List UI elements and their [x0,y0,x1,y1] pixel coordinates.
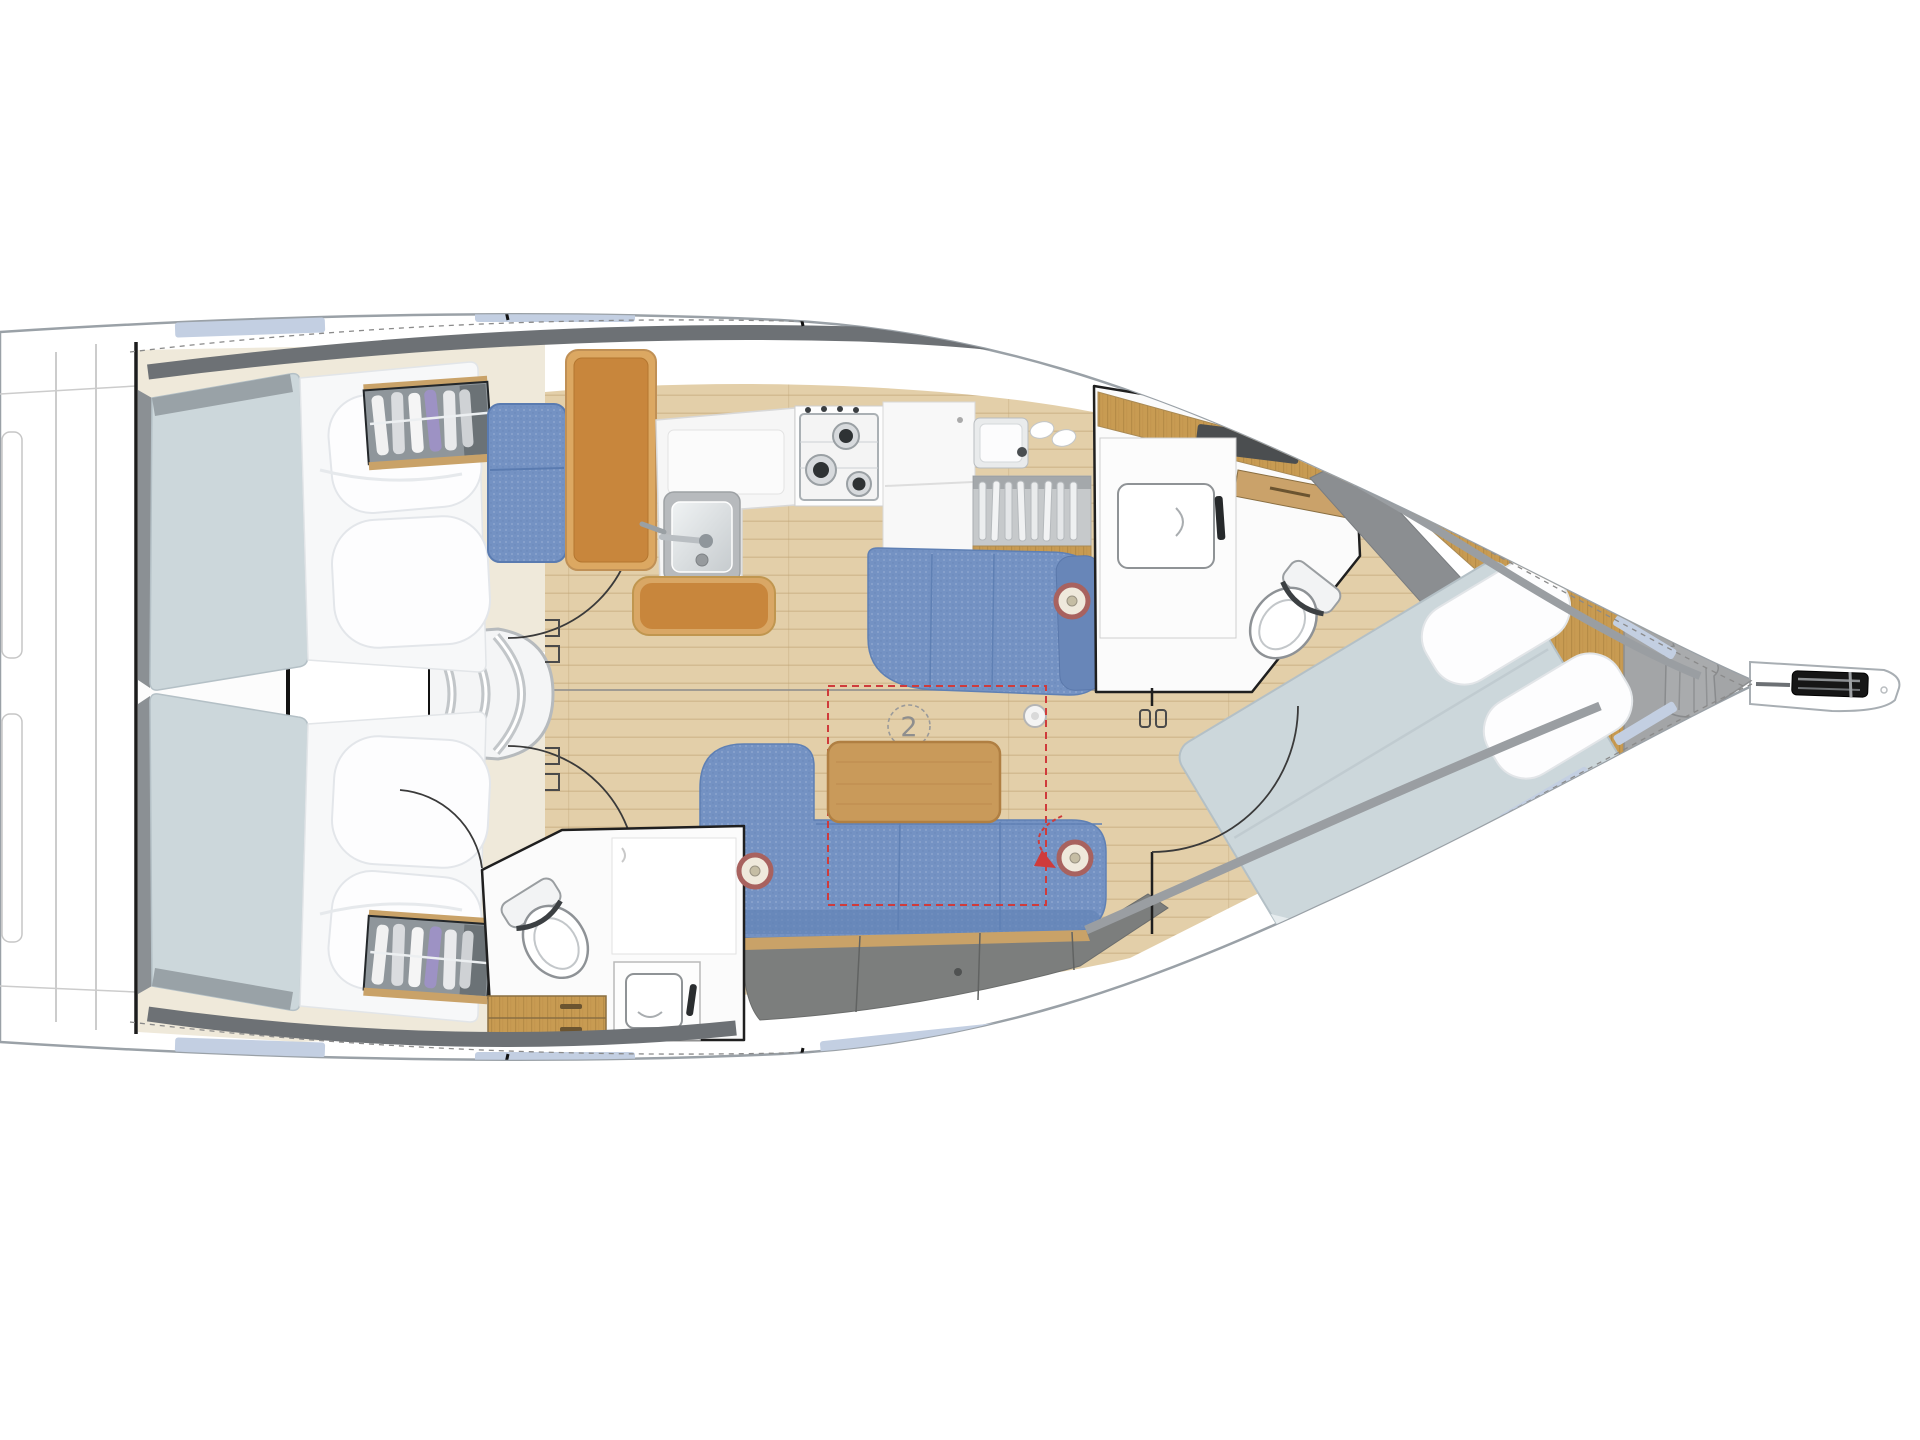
chart-table-top [574,358,648,562]
sink-basin [1118,484,1214,568]
faucet-spout [662,537,704,541]
berth-count-label: 2 [900,712,917,743]
shower-panel [612,838,736,954]
bed-pillow [330,734,492,870]
salon-table [828,742,1000,822]
locker-latch [954,968,962,976]
bed-mattress [150,694,308,1010]
bench-cushion [640,583,768,629]
bowsprit [1750,662,1899,711]
clothes-item [443,390,457,450]
bed-pillow [330,514,492,650]
floorplan-canvas: 2 [0,0,1920,1440]
fridge-latch [957,417,963,423]
burner [833,423,859,449]
stem-fitting [1756,684,1790,685]
speaker-icon [1056,585,1088,617]
table-top [828,742,1000,822]
speaker-icon [1059,842,1091,874]
interior: 2 [0,304,1752,1068]
fridge-top [883,402,975,552]
bed-mattress [150,374,308,690]
burner [806,455,836,485]
anchor-roller-icon [1792,671,1869,698]
faucet-head [699,534,713,548]
tap [1017,447,1027,457]
settee-front-roll [706,910,1100,934]
wardrobe [363,910,493,1004]
counter-panel [668,430,784,494]
sink-drain [696,554,708,566]
stove [795,406,883,506]
galley-bench [633,577,775,635]
yacht-floorplan-diagram: 2 [0,0,1920,1440]
burner [847,472,871,496]
sink-basin [980,424,1022,462]
table-pedestal-cap [1031,712,1039,720]
speaker-icon [739,855,771,887]
wardrobe [363,376,493,470]
dish-rack [973,476,1091,562]
drawer-handle [560,1004,582,1009]
sink-basin [626,974,682,1028]
anchor-pin [1850,672,1851,697]
